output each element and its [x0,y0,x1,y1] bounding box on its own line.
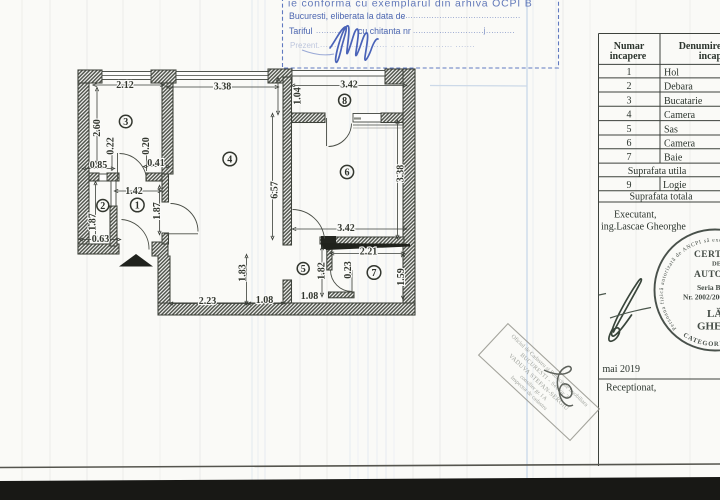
svg-text:1.87: 1.87 [152,202,163,220]
svg-text:0.22: 0.22 [106,137,117,155]
svg-text:incapere: incapere [610,51,647,62]
svg-text:1.87: 1.87 [88,213,99,231]
svg-text:4: 4 [227,155,232,166]
svg-text:1.08: 1.08 [256,295,274,306]
svg-text:6: 6 [627,138,632,149]
svg-text:AUTORIZARE: AUTORIZARE [694,270,720,280]
svg-text:Logie: Logie [663,180,687,191]
svg-text:ing.Lascae Gheorghe: ing.Lascae Gheorghe [601,222,686,233]
svg-text:CERTIFICAT: CERTIFICAT [694,250,720,260]
svg-text:3.42: 3.42 [337,223,355,234]
svg-text:Sas: Sas [664,125,678,136]
svg-text:1.82: 1.82 [317,262,328,280]
svg-text:7: 7 [372,268,377,279]
svg-text:1.42: 1.42 [125,186,143,197]
svg-text:ie conforma cu exemplarul din: ie conforma cu exemplarul din arhiva OCP… [288,0,533,10]
svg-text:2.21: 2.21 [360,247,378,258]
svg-text:..............................: ........................................… [400,11,521,20]
svg-text:6.57: 6.57 [270,181,281,199]
svg-text:8: 8 [342,96,347,107]
svg-text:Receptionat,: Receptionat, [606,383,656,394]
svg-text:6: 6 [345,168,350,179]
svg-text:1.08: 1.08 [301,291,319,302]
svg-text:Nr. 2002/2005: Nr. 2002/2005 [683,293,720,302]
svg-text:mai 2019: mai 2019 [603,364,641,375]
svg-text:2.23: 2.23 [199,296,217,307]
svg-text:0.63: 0.63 [92,234,110,245]
svg-text:1.83: 1.83 [238,264,249,282]
svg-text:...........................j..: ...........................j........... [413,26,515,35]
svg-text:Hol: Hol [664,68,679,79]
svg-text:1.04: 1.04 [293,87,304,105]
svg-text:3.42: 3.42 [340,79,358,90]
svg-text:Suprafata utila: Suprafata utila [628,166,687,177]
svg-text:0.23: 0.23 [343,261,354,279]
svg-text:Seria B: Seria B [697,283,720,292]
svg-text:Baie: Baie [664,153,683,164]
svg-text:2: 2 [100,201,105,212]
svg-text:3: 3 [627,95,632,106]
svg-text:incapere: incapere [699,51,720,62]
svg-text:0.41: 0.41 [147,158,165,169]
svg-text:7: 7 [627,152,632,163]
svg-text:2.12: 2.12 [116,80,134,91]
svg-text:LĂSCAE: LĂSCAE [707,308,720,320]
svg-text:1: 1 [135,201,140,212]
svg-text:0.85: 0.85 [90,160,108,171]
svg-text:Bucatarie: Bucatarie [664,96,703,107]
svg-text:2.60: 2.60 [92,119,103,137]
svg-text:3.38: 3.38 [214,81,232,92]
svg-text:4: 4 [627,110,632,121]
svg-text:1.59: 1.59 [396,268,407,286]
svg-text:cu chitanta nr: cu chitanta nr [358,26,411,36]
svg-text:Suprafata totala: Suprafata totala [629,192,693,203]
svg-text:3: 3 [123,117,128,128]
svg-text:1: 1 [627,67,632,78]
svg-text:Debara: Debara [664,82,693,93]
svg-text:Executant,: Executant, [614,210,656,221]
svg-text:2: 2 [627,81,632,92]
svg-text:GHEORGHE: GHEORGHE [697,321,720,333]
svg-text:Camera: Camera [664,110,696,121]
svg-text:3.38: 3.38 [396,165,407,183]
svg-text:0.20: 0.20 [141,137,152,155]
svg-text:9: 9 [627,180,632,191]
svg-text:5: 5 [627,124,632,135]
svg-text:5: 5 [301,264,306,275]
svg-text:DE: DE [712,261,720,268]
svg-text:Tariful: Tariful [289,26,313,36]
svg-text:Prezent.: Prezent. [290,41,320,50]
svg-text:Camera: Camera [664,139,696,150]
svg-text:Bucuresti, eliberata la data d: Bucuresti, eliberata la data de [289,11,405,21]
